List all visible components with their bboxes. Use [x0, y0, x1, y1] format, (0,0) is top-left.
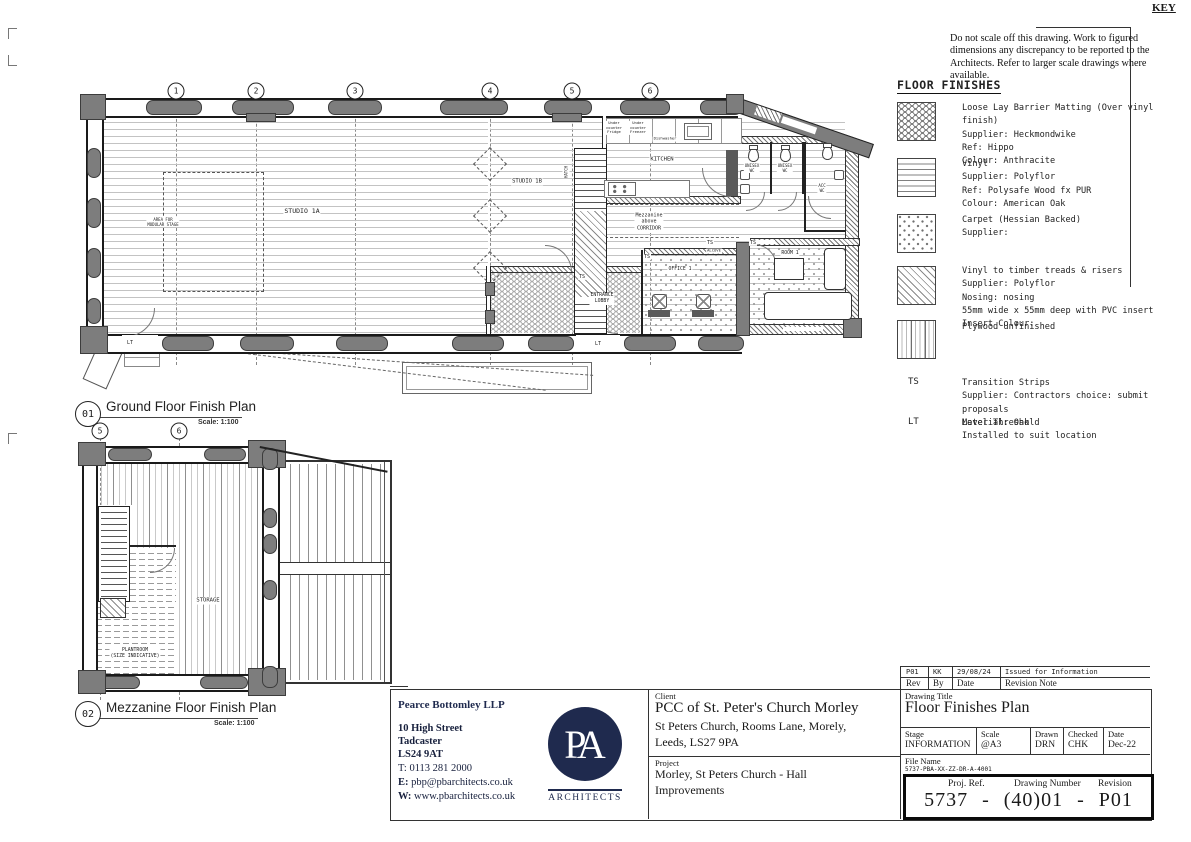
ts-marker: TS	[643, 254, 651, 260]
room-label-unisex-wc-2: UNISEX WC	[777, 163, 793, 173]
grid-bubble-5: 5	[564, 83, 581, 100]
corner-buttress	[80, 326, 108, 354]
modular-stage-area	[163, 172, 264, 292]
meta-divider-v	[1103, 727, 1104, 754]
rev-header-note: Revision Note	[1005, 678, 1057, 688]
wall-pier	[328, 100, 382, 115]
wall-office-west	[641, 250, 643, 334]
wc-partition	[770, 142, 772, 194]
legend-swatch-carpet	[897, 214, 936, 253]
rev-entry-date: 29/08/24	[957, 668, 991, 676]
mezz-wall-west	[82, 446, 98, 688]
pba-logo-monogram: PA	[564, 721, 599, 768]
rev-line	[900, 666, 1150, 667]
step-line	[406, 366, 588, 390]
drawing-number-value: (40)01	[1004, 789, 1063, 811]
key-bracket-line-h	[1036, 27, 1131, 28]
stair-core	[574, 148, 607, 334]
room-label-acc-wc: ACC WC	[817, 183, 826, 193]
ground-tick	[390, 686, 408, 687]
tb-divider-v	[900, 666, 901, 819]
wall-pier-tab	[552, 113, 582, 122]
external-steps	[402, 362, 592, 394]
wall-pier-tab	[246, 113, 276, 122]
plan-title-mezzanine: Mezzanine Floor Finish Plan	[106, 700, 276, 715]
step-line	[125, 357, 159, 358]
room-label-kitchen: KITCHEN	[649, 157, 674, 164]
room-label-unisex-wc-1: UNISEX WC	[744, 163, 760, 173]
legend-swatch-vinyl	[897, 158, 936, 197]
legend-abbr-ts: TS	[908, 377, 919, 387]
lt-marker: LT	[594, 341, 602, 347]
wall-pier	[620, 100, 670, 115]
plan-scale-mezzanine: Scale: 1:100	[214, 720, 254, 727]
toilet-icon	[748, 148, 759, 162]
room-label-plantroom: PLANTROOM (SIZE INDICATIVE)	[109, 648, 160, 660]
toilet-icon	[780, 148, 791, 162]
wall-pier	[262, 448, 278, 470]
room-label-storage: STORAGE	[195, 598, 220, 605]
office-desk	[692, 310, 714, 317]
mezz-stair	[98, 506, 130, 602]
kitchen-tall-unit	[726, 150, 738, 196]
plan-title-underline	[76, 718, 258, 719]
sink-icon	[684, 123, 712, 140]
tb-divider-h	[900, 727, 1150, 728]
corner-buttress	[78, 442, 106, 466]
stair-hatch	[575, 211, 606, 297]
office-chair-icon	[652, 294, 667, 309]
ts-marker: TS	[578, 274, 586, 280]
print-mark	[8, 55, 17, 66]
legend-swatch-treads	[897, 266, 936, 305]
drawing-sheet: KEY Do not scale off this drawing. Work …	[0, 0, 1191, 842]
stair-treads	[101, 507, 127, 601]
legend-abbr-lt: LT	[908, 417, 919, 427]
basin-icon	[834, 170, 844, 180]
wall-pier	[336, 336, 388, 351]
drawing-reference-box: Proj. Ref. Drawing Number Revision 5737 …	[903, 774, 1154, 820]
ts-marker: TS	[749, 240, 757, 246]
wall-pier	[263, 534, 277, 554]
ts-marker: TS	[706, 240, 714, 246]
wc-partition	[804, 230, 846, 232]
mezzanine-outline-dash	[605, 204, 739, 205]
hob-icon	[608, 182, 636, 196]
wall-pier	[624, 336, 676, 351]
wall-pier	[440, 100, 508, 115]
stair-treads-upper	[575, 149, 606, 209]
grid-bubble-2: 2	[248, 83, 265, 100]
revision-label: Revision	[1098, 779, 1132, 789]
revision-value: P01	[1099, 789, 1133, 811]
appliance-label-fridge: Under counter Fridge	[605, 121, 623, 135]
basin-icon	[740, 184, 750, 194]
room-label-office1: OFFICE 1	[667, 267, 692, 273]
rev-header-date: Date	[957, 678, 974, 688]
rev-entry-note: Issued for Information	[1005, 668, 1098, 676]
room-label-studio1b: STUDIO 1B	[511, 179, 543, 186]
tb-divider-v	[648, 689, 649, 819]
rev-divider-v	[928, 666, 929, 689]
wall-pier	[200, 676, 248, 689]
corner-buttress	[843, 318, 862, 338]
roof-edge-line	[384, 462, 385, 682]
sofa	[764, 292, 852, 320]
drawing-reference-value: 5737 - (40)01 - P01	[906, 789, 1151, 812]
proj-ref-label: Proj. Ref.	[948, 779, 985, 789]
toilet-icon	[822, 146, 833, 160]
key-heading: KEY	[1152, 2, 1176, 14]
office-chair-icon	[696, 294, 711, 309]
drawing-number-label: Drawing Number	[1014, 779, 1081, 789]
wall-pier	[204, 448, 246, 461]
ref-separator: -	[1077, 789, 1085, 811]
grid-bubble-5m: 5	[92, 423, 109, 440]
print-mark	[8, 28, 17, 39]
room-label-room1: ROOM 1	[780, 251, 799, 257]
legend-heading: FLOOR FINISHES	[897, 78, 1001, 94]
legend-text-plywood: Plywood unfinished	[962, 321, 1055, 334]
corner-buttress	[80, 94, 106, 120]
legend-swatch-plywood	[897, 320, 936, 359]
room-label-lobby: ENTRANCE LOBBY	[589, 293, 614, 305]
window-gap	[783, 327, 823, 331]
wall-pier	[240, 336, 294, 351]
sofa	[824, 248, 846, 290]
appliance-label-dishwasher: Dishwasher	[653, 137, 678, 142]
landing-edge	[130, 545, 176, 547]
wall-pier	[87, 198, 101, 228]
disclaimer-note: Do not scale off this drawing. Work to f…	[950, 33, 1166, 83]
wall-pier	[452, 336, 504, 351]
plan-title-ground: Ground Floor Finish Plan	[106, 399, 256, 414]
grid-bubble-3: 3	[347, 83, 364, 100]
meta-divider-v	[1030, 727, 1031, 754]
roof-junction-block	[726, 94, 744, 114]
wall-pier	[698, 336, 744, 351]
wall-pier	[162, 336, 214, 351]
table	[774, 258, 804, 280]
ref-separator: -	[982, 789, 990, 811]
wall-pier	[108, 448, 152, 461]
rev-line	[900, 677, 1150, 678]
rev-divider-v	[1000, 666, 1001, 689]
meta-divider-v	[1063, 727, 1064, 754]
wall-pier	[485, 310, 495, 324]
lt-marker: LT	[126, 340, 134, 346]
roof-hatch-segment	[754, 105, 782, 123]
grid-bubble-1: 1	[168, 83, 185, 100]
wall-pier	[263, 508, 277, 528]
wall-room1-north	[750, 238, 860, 246]
wall-room1-west	[736, 242, 750, 336]
legend-text-vinyl: Vinyl Supplier: Polyflor Ref: Polysafe W…	[962, 158, 1091, 211]
wall-pier	[87, 248, 101, 278]
rev-divider-v	[952, 666, 953, 689]
wall-pier	[485, 282, 495, 296]
appliance-label-freezer: Under counter Freezer	[629, 121, 647, 135]
grid-bubble-4: 4	[482, 83, 499, 100]
wall-office-north	[644, 248, 740, 255]
wall-pier	[87, 298, 101, 324]
legend-swatch-matting	[897, 102, 936, 141]
rev-entry-rev: P01	[906, 668, 919, 676]
tb-divider-h	[900, 754, 1150, 755]
room-label-alcove: ALCOVE	[706, 249, 722, 254]
room-label-studio1a: STUDIO 1A	[283, 207, 320, 215]
mezz-wall-east	[262, 446, 280, 688]
mezz-stair-hatch	[100, 598, 126, 618]
roof-plan	[278, 460, 392, 684]
grid-bubble-6m: 6	[171, 423, 188, 440]
tb-divider-h	[648, 756, 900, 757]
plan-title-underline	[76, 417, 242, 418]
wall-pier	[263, 580, 277, 600]
rev-header-by: By	[933, 678, 944, 688]
rev-entry-by: KK	[933, 668, 941, 676]
hatch-label: HATCH	[563, 166, 570, 178]
legend-text-carpet: Carpet (Hessian Backed) Supplier:	[962, 214, 1081, 241]
proj-ref-value: 5737	[924, 789, 968, 811]
room-label-mezzanine-corridor: Mezzanine above CORRIDOR	[634, 213, 663, 232]
floor-carpet-office1	[644, 253, 736, 333]
roof-ridge-band	[280, 562, 390, 575]
plan-number-02: 02	[75, 701, 101, 727]
legend-text-lt: Level Threshold Installed to suit locati…	[962, 417, 1097, 444]
corner-buttress	[78, 670, 106, 694]
office-desk	[648, 310, 670, 317]
pba-logo: PA	[548, 707, 622, 781]
grid-bubble-6: 6	[642, 83, 659, 100]
wall-pier	[528, 336, 574, 351]
wall-pier	[262, 666, 278, 688]
area-label-stage: AREA FOR MODULAR STAGE	[146, 217, 179, 227]
wall-pier	[87, 148, 101, 178]
wc-partition	[804, 142, 806, 232]
rev-header-rev: Rev	[906, 678, 921, 688]
mezzanine-outline-dash	[605, 237, 739, 238]
meta-divider-v	[976, 727, 977, 754]
print-mark	[8, 433, 17, 444]
wall-pier	[146, 100, 202, 115]
plan-scale-ground: Scale: 1:100	[198, 419, 238, 426]
